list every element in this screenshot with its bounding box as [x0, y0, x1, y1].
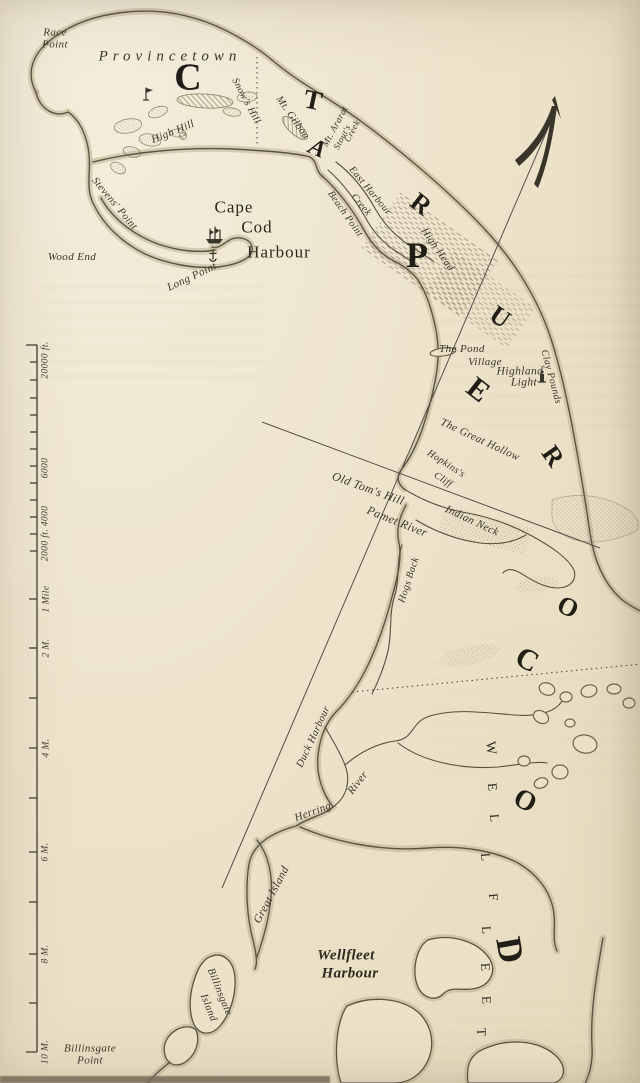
label-the-pond-village: The Pond [439, 343, 485, 355]
label-wood-end: Wood End [48, 251, 96, 263]
scale-label: 6000 [41, 458, 52, 479]
scale-label: 6 M. [41, 842, 52, 861]
scale-label: 8 M. [41, 944, 52, 963]
label-cape-cod-harbour: Cod [241, 217, 272, 236]
scale-label: 2000 ft. [41, 529, 52, 561]
map-letter-wellfleet: L [486, 813, 501, 822]
map-letter-wellfleet: E [484, 782, 499, 791]
map-letter-wellfleet: L [478, 926, 493, 935]
map-letter-wellfleet: L [477, 852, 492, 861]
scale-label: 2 M. [42, 638, 53, 657]
map-letter-wellfleet: W [482, 741, 499, 756]
map-letter-wellfleet: T [473, 1028, 488, 1037]
label-race-point: Race Point [42, 27, 68, 52]
map-canvas: C T A R P U E R O C O D W E L L F L E E … [0, 0, 640, 1083]
scale-label: 10 M. [41, 1040, 52, 1064]
sailing-ship-icon [206, 227, 223, 244]
lighthouse-icon [144, 88, 154, 100]
label-highland-light: Light [511, 377, 537, 390]
scale-label: 4000 [41, 506, 52, 527]
map-artwork [0, 0, 640, 1083]
scale-label: 1 Mile [42, 586, 53, 613]
ponds [430, 346, 635, 790]
map-letter-wellfleet: F [485, 893, 500, 902]
label-cape-cod-harbour: Harbour [247, 242, 311, 261]
label-provincetown: Provincetown [99, 49, 242, 66]
label-billinsgate-point: Billinsgate Point [64, 1043, 116, 1068]
label-wellfleet-harbour: Harbour [322, 966, 379, 983]
dune-and-hill-texture [109, 91, 639, 671]
scale-bar [26, 345, 37, 1052]
map-letter-wellfleet: E [477, 963, 492, 972]
scale-label: 4 M. [42, 738, 53, 757]
scale-label: 20000 ft. [41, 341, 52, 378]
label-cape-cod-harbour: Cape [215, 197, 254, 216]
map-letter-wellfleet: E [478, 996, 493, 1005]
label-wellfleet-harbour: Wellfleet [317, 948, 374, 965]
